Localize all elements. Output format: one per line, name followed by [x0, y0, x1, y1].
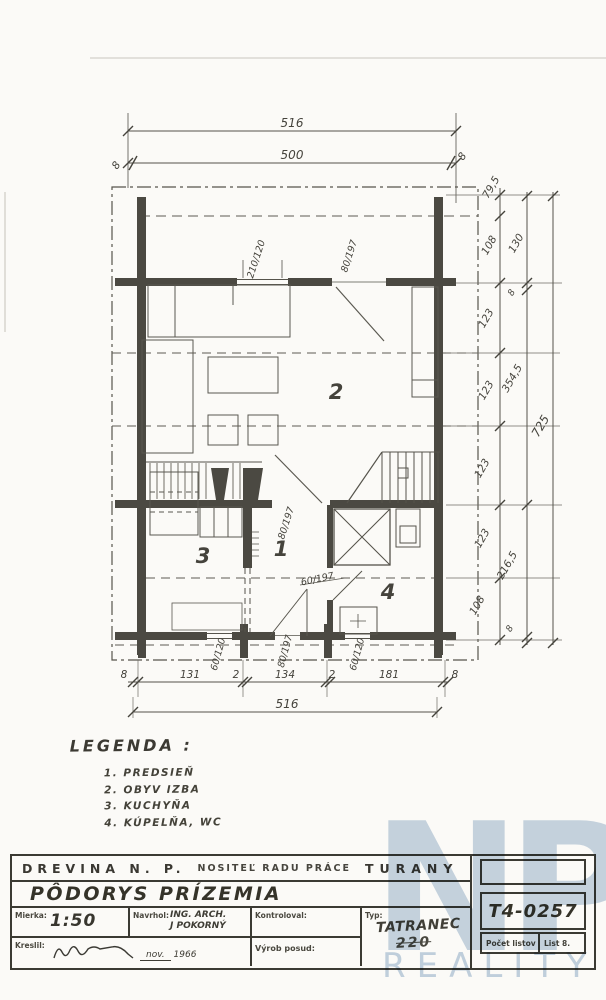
dim-label: 131: [180, 669, 200, 681]
dim-label: 108: [467, 594, 488, 618]
legend: LEGENDA : 1. PREDSIEŇ 2. OBYV IZBA 3. KU…: [70, 735, 223, 831]
dim-label: 123: [472, 527, 492, 550]
dim-label: 216,5: [495, 549, 521, 581]
door-size-label: 80/197: [276, 506, 297, 541]
dim-label: 8: [110, 159, 124, 172]
date-month: nov.: [140, 950, 171, 961]
designer-label: Navrhol:: [133, 911, 169, 920]
dim-label: 2: [233, 669, 240, 681]
dim-label: 123: [472, 457, 492, 480]
door-size-label: 80/197: [339, 239, 360, 274]
roof-outline: [112, 187, 478, 660]
door-size-label: 60/197: [300, 571, 335, 589]
company-row: DREVINA N. P. NOSITEĽ RADU PRÁCE TURANY: [12, 856, 470, 882]
legend-item: 2. OBYV IZBA: [104, 781, 222, 799]
window-size-label: 60/120: [348, 637, 367, 672]
type-cell: Typ: TATRANEC 220: [362, 908, 472, 966]
living-room-furniture: [142, 285, 438, 503]
company-city: TURANY: [365, 861, 459, 876]
drawing-title: PÔDORYS PRÍZEMIA: [30, 883, 282, 905]
title-block-left: DREVINA N. P. NOSITEĽ RADU PRÁCE TURANY …: [12, 856, 472, 968]
signature: [50, 940, 136, 964]
door-size-label: 80/197: [276, 634, 295, 669]
designer-title: ING. ARCH.: [170, 910, 226, 920]
scale-cell: Mierka: 1:50: [12, 908, 130, 938]
date: nov. 1966: [140, 950, 196, 960]
date-year: 1966: [174, 950, 197, 960]
dim-label: 516: [281, 116, 304, 130]
production-label: Výrob posud:: [255, 944, 315, 953]
dim-label: 108: [479, 234, 500, 258]
dim-label: 516: [276, 697, 299, 711]
dim-label: 134: [275, 669, 295, 681]
scale-label: Mierka:: [15, 911, 47, 920]
scan-artifact-line: [90, 57, 606, 59]
dim-label: 8: [505, 624, 517, 634]
scan-artifact-edge: [4, 192, 6, 332]
dim-label: 354,5: [500, 362, 526, 394]
type-name-stamp: TATRANEC: [376, 916, 461, 936]
sheet-number-label: List 8.: [540, 934, 570, 952]
room-number-bath: 4: [380, 580, 396, 604]
window-size-label: 60/120: [209, 637, 228, 672]
drawing-title-row: PÔDORYS PRÍZEMIA: [12, 882, 470, 908]
floor-plan-svg: 516 500 8 8: [0, 0, 606, 845]
dim-label: 500: [281, 148, 304, 162]
bathroom-fixtures: [333, 509, 420, 634]
title-block-right: T4-0257 Počet listov List 8.: [472, 856, 592, 968]
designer-cell: Navrhol: ING. ARCH. J POKORNÝ: [130, 908, 252, 938]
legend-item: 4. KÚPELŇA, WC: [104, 814, 222, 832]
legend-item: 3. KUCHYŇA: [104, 797, 222, 815]
type-label: Typ:: [365, 911, 382, 920]
wall-openings: [207, 260, 386, 639]
production-cell: Výrob posud:: [252, 938, 362, 966]
scale-value: 1:50: [50, 911, 96, 931]
staircase-right: [347, 452, 440, 503]
drawing-code-box: T4-0257: [480, 892, 586, 930]
legend-title: LEGENDA :: [70, 735, 222, 755]
designer-surname: J POKORNÝ: [170, 921, 226, 931]
empty-box: [480, 859, 586, 885]
company-subtitle: NOSITEĽ RADU PRÁCE: [198, 863, 351, 874]
designer-name: ING. ARCH. J POKORNÝ: [170, 910, 226, 932]
room-number-living: 2: [329, 380, 344, 404]
company-name: DREVINA N. P.: [22, 861, 186, 876]
sheets-row: Počet listov List 8.: [480, 932, 586, 954]
type-number-stamp: 220: [396, 934, 432, 952]
title-block: DREVINA N. P. NOSITEĽ RADU PRÁCE TURANY …: [10, 854, 596, 970]
sheet-count-label: Počet listov: [482, 934, 540, 952]
dim-label: 8: [452, 669, 459, 681]
dim-label: 130: [506, 232, 527, 256]
legend-item: 1. PREDSIEŇ: [104, 764, 222, 782]
dim-label: 2: [329, 669, 336, 681]
drawn-by-cell: Kreslil: nov. 1966: [12, 938, 252, 966]
dim-label: 123: [476, 307, 496, 330]
dim-label: 181: [379, 669, 399, 681]
scanned-drawing-page: 516 500 8 8: [0, 0, 606, 1000]
dim-label: 8: [121, 669, 128, 681]
drawing-code: T4-0257: [488, 901, 577, 922]
checker-label: Kontroloval:: [255, 911, 307, 920]
dim-label: 8: [507, 288, 519, 298]
drawn-by-label: Kreslil:: [15, 941, 45, 950]
window-size-label: 210/120: [245, 239, 268, 280]
checker-cell: Kontroloval:: [252, 908, 362, 938]
dim-label: 123: [476, 379, 496, 402]
room-number-kitchen: 3: [196, 544, 211, 568]
outer-walls: [115, 197, 456, 658]
